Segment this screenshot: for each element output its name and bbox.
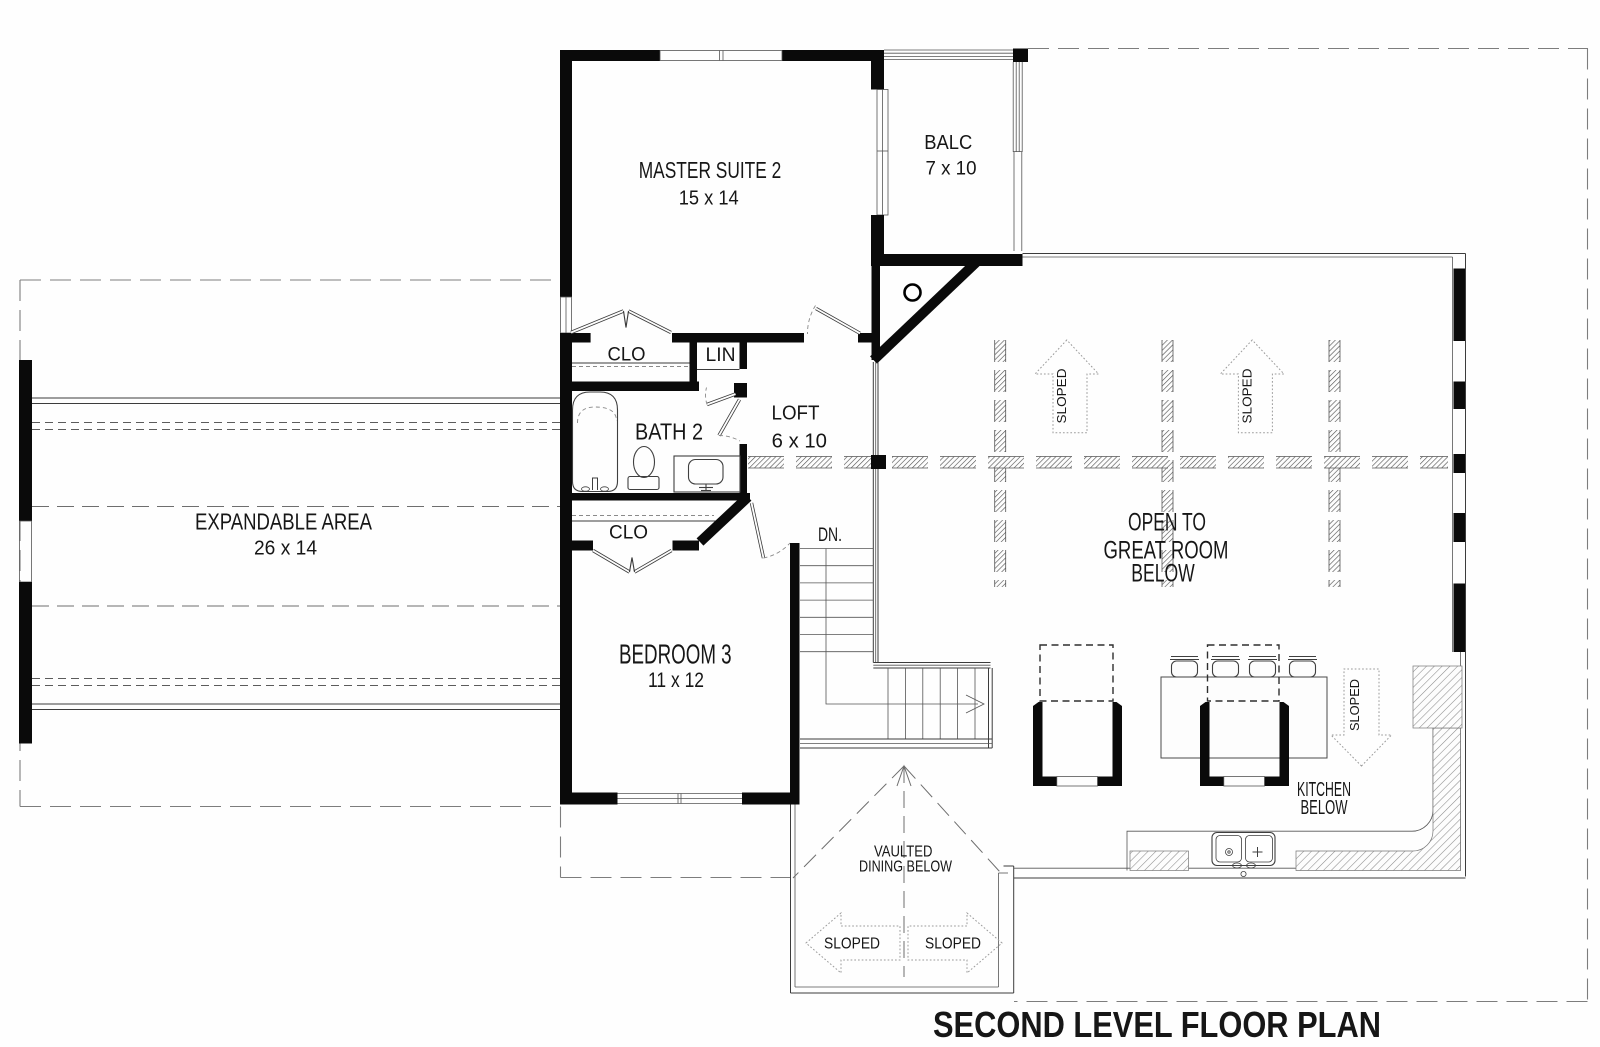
svg-text:MASTER SUITE 2: MASTER SUITE 2: [639, 157, 782, 183]
svg-text:OPEN TO: OPEN TO: [1128, 509, 1206, 537]
svg-text:SLOPED: SLOPED: [824, 936, 880, 953]
svg-text:LOFT: LOFT: [772, 403, 820, 425]
svg-text:BELOW: BELOW: [1301, 797, 1348, 819]
svg-text:BELOW: BELOW: [1131, 560, 1195, 588]
svg-text:SECOND LEVEL FLOOR PLAN: SECOND LEVEL FLOOR PLAN: [933, 1004, 1381, 1045]
svg-text:6 x 10: 6 x 10: [772, 431, 827, 453]
svg-text:EXPANDABLE AREA: EXPANDABLE AREA: [195, 509, 372, 535]
svg-text:11 x 12: 11 x 12: [648, 669, 704, 692]
svg-text:7 x 10: 7 x 10: [926, 159, 977, 180]
svg-text:BEDROOM 3: BEDROOM 3: [619, 639, 732, 670]
svg-text:DN.: DN.: [818, 525, 842, 546]
svg-text:SLOPED: SLOPED: [1055, 369, 1069, 424]
svg-text:26 x 14: 26 x 14: [254, 538, 317, 560]
svg-text:CLO: CLO: [609, 523, 648, 544]
svg-text:LIN: LIN: [706, 345, 736, 366]
svg-text:BALC: BALC: [924, 132, 972, 154]
svg-text:SLOPED: SLOPED: [1348, 679, 1362, 731]
svg-text:15 x 14: 15 x 14: [679, 188, 739, 210]
svg-text:BATH 2: BATH 2: [635, 419, 703, 445]
svg-text:SLOPED: SLOPED: [1240, 369, 1254, 424]
svg-text:DINING BELOW: DINING BELOW: [859, 859, 953, 876]
svg-text:SLOPED: SLOPED: [925, 936, 981, 953]
svg-text:CLO: CLO: [608, 345, 646, 366]
